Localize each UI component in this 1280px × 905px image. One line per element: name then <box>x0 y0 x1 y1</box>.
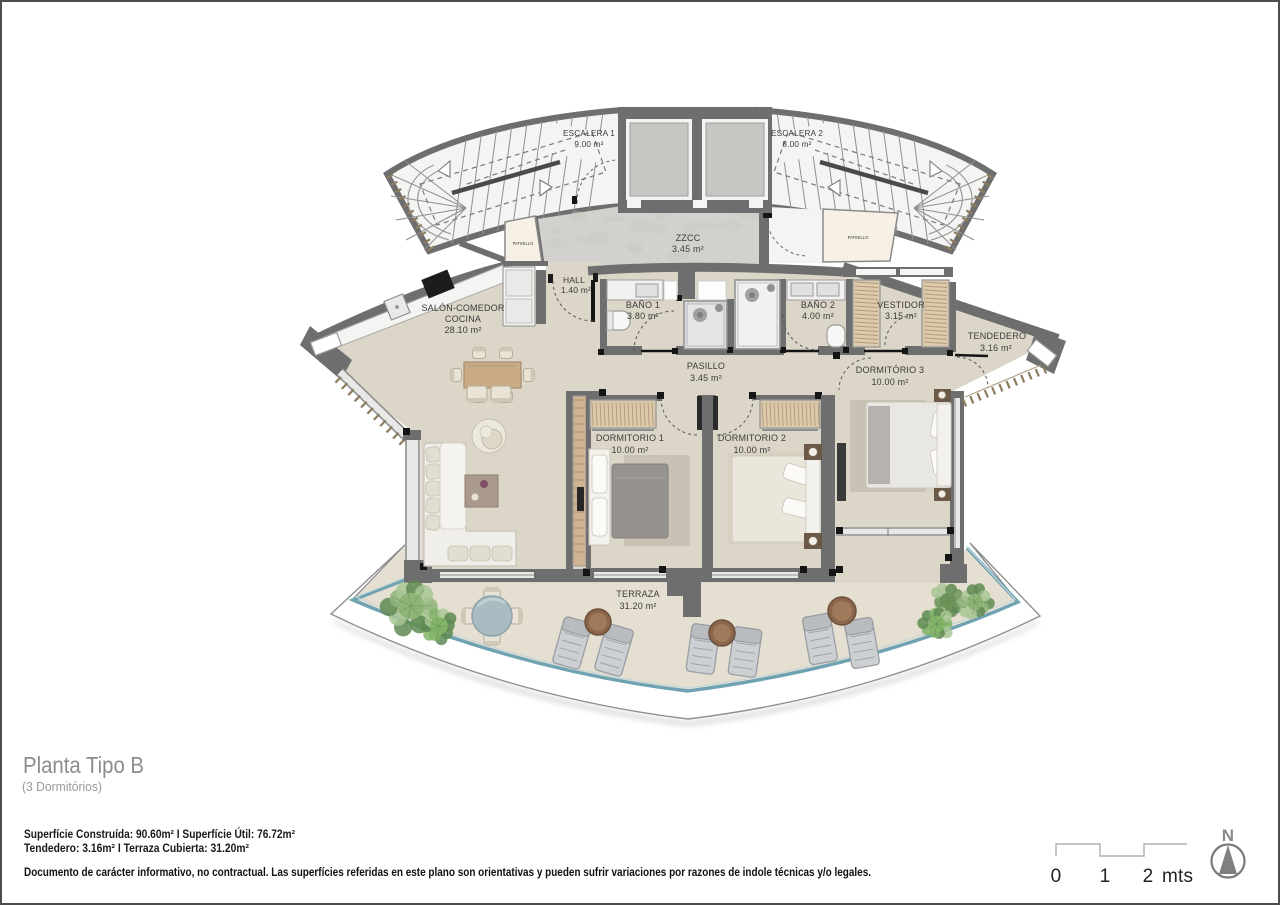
svg-text:BAÑO 2: BAÑO 2 <box>801 300 835 310</box>
svg-text:2: 2 <box>1143 866 1154 887</box>
svg-text:10.00 m²: 10.00 m² <box>871 377 908 387</box>
svg-text:3.15 m²: 3.15 m² <box>885 311 917 321</box>
svg-text:COCINA: COCINA <box>445 314 481 324</box>
svg-text:8.00 m²: 8.00 m² <box>782 140 811 149</box>
svg-text:10.00 m²: 10.00 m² <box>733 445 770 455</box>
svg-text:ZZCC: ZZCC <box>676 233 701 243</box>
svg-text:ESCALERA 2: ESCALERA 2 <box>771 129 823 138</box>
svg-text:3.45 m²: 3.45 m² <box>690 373 722 383</box>
svg-text:4.00 m²: 4.00 m² <box>802 311 834 321</box>
svg-text:Planta Tipo B: Planta Tipo B <box>23 752 144 778</box>
svg-text:mts: mts <box>1162 866 1193 887</box>
svg-text:PATINILLO: PATINILLO <box>513 241 535 246</box>
svg-text:Tendedero: 3.16m² I Terraza Cu: Tendedero: 3.16m² I Terraza Cubierta: 31… <box>24 843 249 855</box>
svg-text:VESTIDOR: VESTIDOR <box>877 300 925 310</box>
svg-text:Documento de carácter informat: Documento de carácter informativo, no co… <box>24 867 871 879</box>
svg-text:10.00 m²: 10.00 m² <box>611 445 648 455</box>
svg-text:1.40 m²: 1.40 m² <box>561 285 591 295</box>
svg-text:31.20 m²: 31.20 m² <box>619 601 656 611</box>
svg-text:DORMITORIO 1: DORMITORIO 1 <box>596 433 664 443</box>
svg-text:3.16 m²: 3.16 m² <box>980 343 1012 353</box>
svg-text:DORMITORIO 2: DORMITORIO 2 <box>718 433 786 443</box>
svg-text:Superfície Construída: 90.60m²: Superfície Construída: 90.60m² I Superfí… <box>24 828 295 841</box>
svg-text:TENDEDERO: TENDEDERO <box>968 331 1026 341</box>
svg-text:BAÑO 1: BAÑO 1 <box>626 300 660 310</box>
svg-text:SALÓN-COMEDOR: SALÓN-COMEDOR <box>421 303 504 313</box>
svg-text:DORMITÓRIO 3: DORMITÓRIO 3 <box>856 365 924 375</box>
svg-text:ESCALERA 1: ESCALERA 1 <box>563 129 615 138</box>
svg-text:N: N <box>1222 826 1234 845</box>
svg-text:PATINILLO: PATINILLO <box>848 235 870 240</box>
svg-text:TERRAZA: TERRAZA <box>616 589 659 599</box>
svg-text:HALL: HALL <box>563 275 585 285</box>
svg-text:28.10 m²: 28.10 m² <box>444 325 481 335</box>
svg-text:1: 1 <box>1100 866 1111 887</box>
svg-text:9.00 m²: 9.00 m² <box>574 140 603 149</box>
svg-text:PASILLO: PASILLO <box>687 361 725 371</box>
svg-text:0: 0 <box>1051 866 1062 887</box>
svg-text:3.45 m²: 3.45 m² <box>672 244 704 254</box>
svg-text:(3 Dormitórios): (3 Dormitórios) <box>22 779 102 794</box>
